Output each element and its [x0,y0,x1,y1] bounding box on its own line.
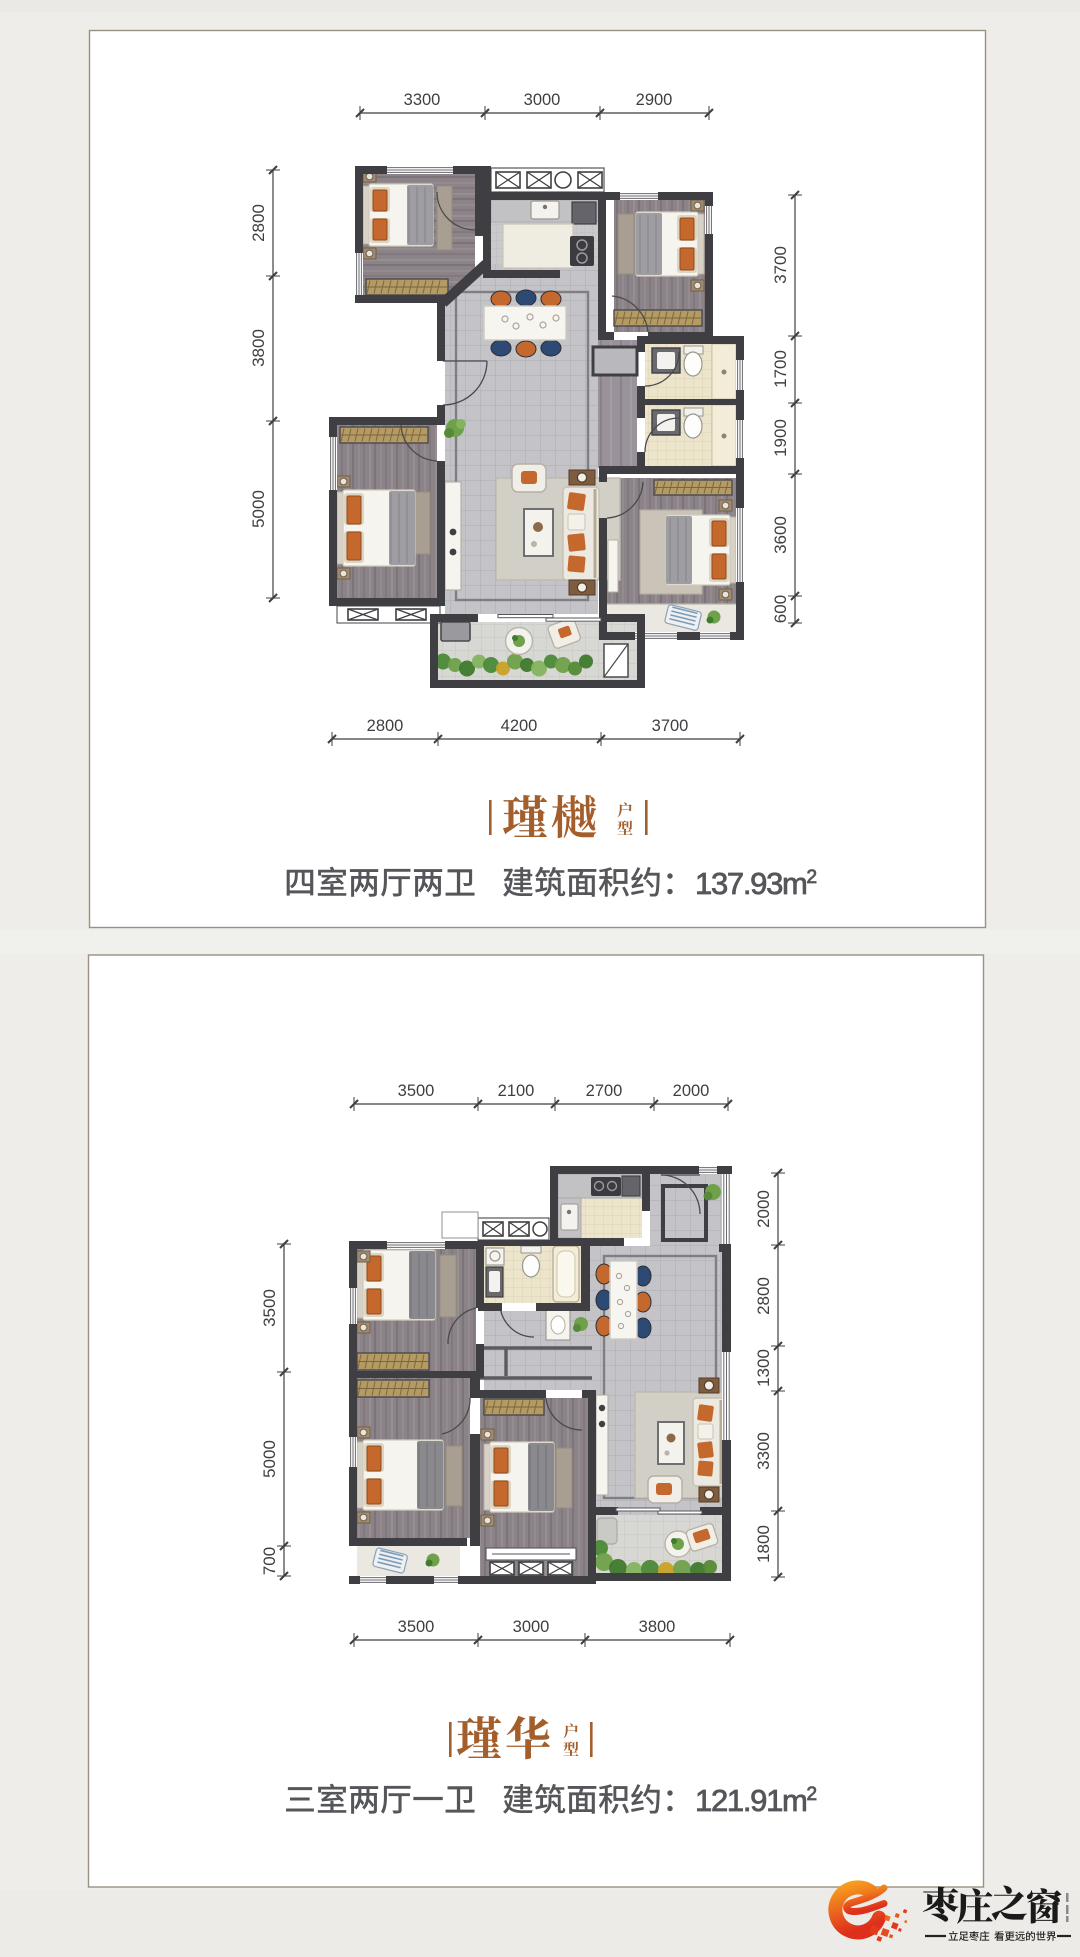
svg-text:3800: 3800 [639,1618,676,1636]
svg-text:3000: 3000 [524,91,561,109]
svg-text:4200: 4200 [501,717,538,735]
svg-text:2700: 2700 [586,1082,623,1100]
svg-text:1700: 1700 [771,350,790,388]
svg-text:2800: 2800 [367,717,404,735]
svg-text:1800: 1800 [754,1525,773,1563]
svg-text:5000: 5000 [249,490,268,528]
svg-text:3800: 3800 [249,329,268,367]
svg-text:3300: 3300 [404,91,441,109]
svg-text:3300: 3300 [754,1432,773,1470]
svg-text:2900: 2900 [636,91,673,109]
svg-text:3600: 3600 [771,516,790,554]
svg-text:121.91m2: 121.91m2 [695,1783,817,1818]
svg-text:1900: 1900 [771,419,790,457]
svg-text:700: 700 [260,1547,279,1575]
svg-text:5000: 5000 [260,1440,279,1478]
svg-text:137.93m2: 137.93m2 [695,866,817,901]
svg-text:3700: 3700 [652,717,689,735]
svg-text:2100: 2100 [498,1082,535,1100]
svg-text:1300: 1300 [754,1349,773,1387]
svg-text:3700: 3700 [771,246,790,284]
svg-text:2800: 2800 [249,204,268,242]
svg-text:2800: 2800 [754,1277,773,1315]
svg-text:3500: 3500 [398,1082,435,1100]
svg-text:3500: 3500 [260,1289,279,1327]
svg-text:600: 600 [771,595,790,623]
svg-text:2000: 2000 [673,1082,710,1100]
svg-text:2000: 2000 [754,1190,773,1228]
svg-text:3000: 3000 [513,1618,550,1636]
svg-text:3500: 3500 [398,1618,435,1636]
